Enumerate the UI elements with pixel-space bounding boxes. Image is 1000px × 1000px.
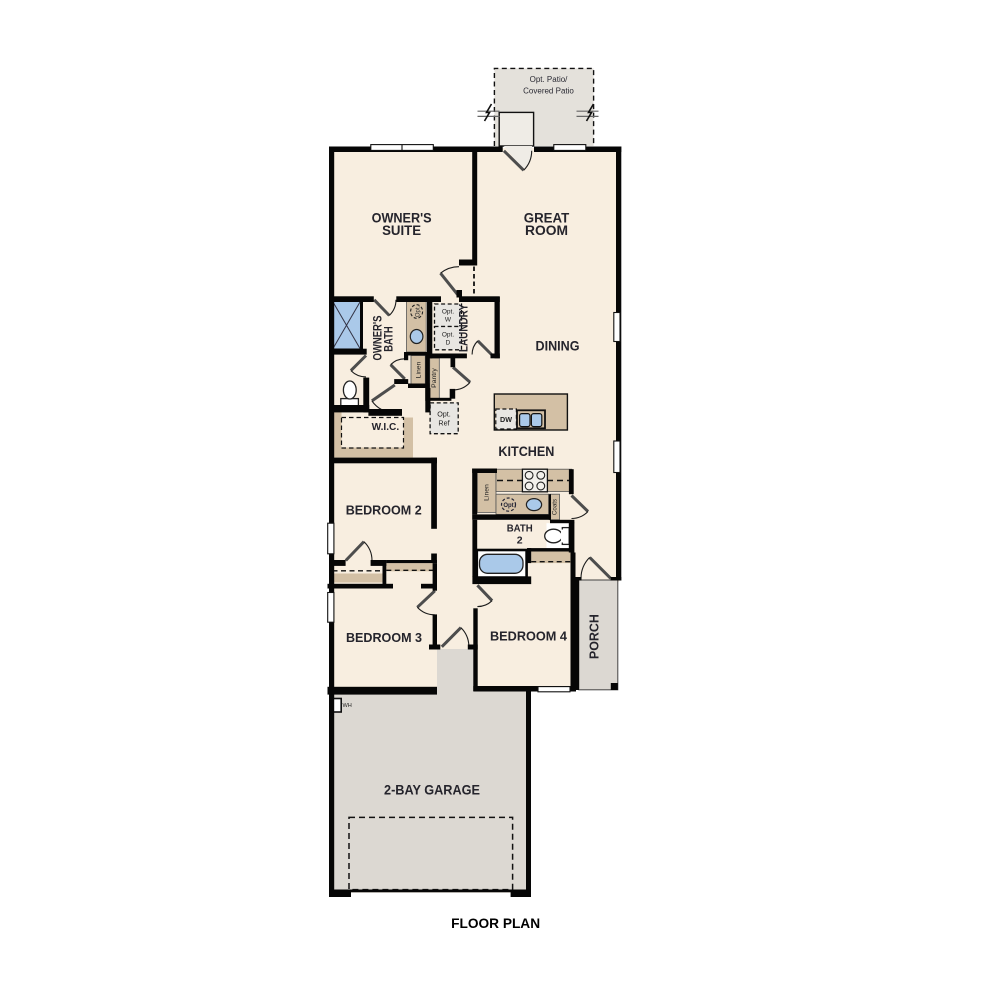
svg-text:PORCH: PORCH [588,614,602,659]
svg-text:WH: WH [343,703,352,709]
svg-text:W: W [445,317,452,324]
svg-text:2-BAY GARAGE: 2-BAY GARAGE [384,782,480,798]
svg-text:Opt.: Opt. [442,332,454,339]
svg-text:Opt. Patio/: Opt. Patio/ [530,75,569,84]
svg-text:BEDROOM 3: BEDROOM 3 [346,630,422,645]
svg-text:Linen: Linen [484,484,491,501]
svg-text:DW: DW [500,415,512,424]
svg-text:FLOOR PLAN: FLOOR PLAN [451,915,540,931]
svg-text:BEDROOM 4: BEDROOM 4 [490,629,568,644]
svg-text:SUITE: SUITE [382,223,421,238]
svg-text:Covered Patio: Covered Patio [523,87,574,96]
svg-text:BEDROOM 2: BEDROOM 2 [346,503,422,518]
svg-text:2: 2 [517,535,523,547]
svg-text:DINING: DINING [536,338,580,353]
svg-text:BATH: BATH [507,523,533,535]
svg-text:BATH: BATH [384,326,396,352]
svg-text:Coats: Coats [552,499,559,515]
svg-text:Linen: Linen [416,361,423,378]
svg-text:Opt.: Opt. [442,309,454,316]
svg-text:W.I.C.: W.I.C. [372,422,400,433]
svg-text:Opt.: Opt. [416,306,422,318]
svg-text:Opt: Opt [503,503,513,509]
svg-text:Pantry: Pantry [431,368,438,388]
svg-text:D: D [446,340,451,347]
svg-text:KITCHEN: KITCHEN [498,444,554,459]
svg-text:Ref: Ref [438,419,449,428]
svg-text:Opt.: Opt. [437,410,451,419]
svg-text:LAUNDRY: LAUNDRY [459,304,471,352]
svg-text:ROOM: ROOM [525,223,568,238]
